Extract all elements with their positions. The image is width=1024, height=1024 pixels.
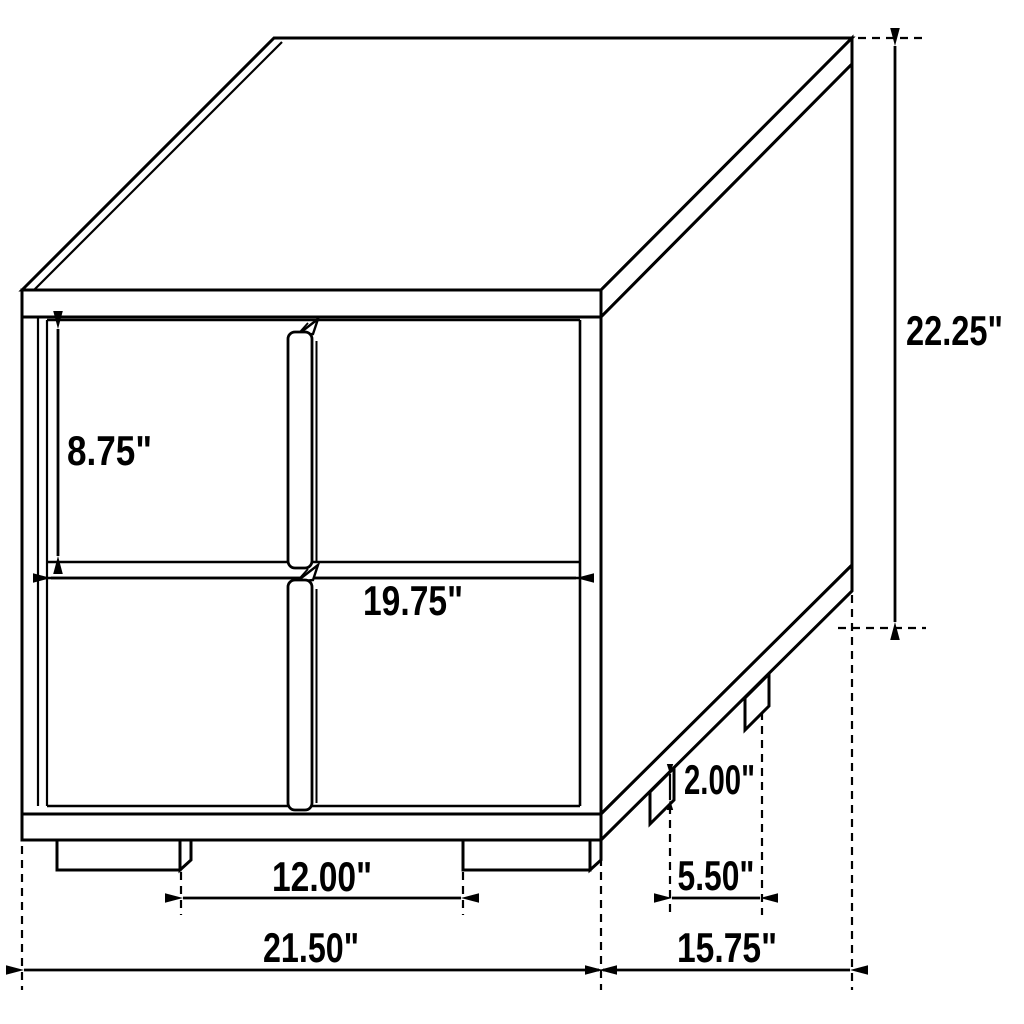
- lower-drawer-handle: [288, 580, 312, 810]
- dim-foot-height: 2.00": [670, 756, 755, 803]
- top-panel-front-edge: [22, 290, 601, 317]
- dimension-label-overall-width: 21.50": [263, 924, 359, 971]
- dimension-label-drawer-width: 19.75": [363, 577, 463, 624]
- dimension-drawing-page: 8.75" 19.75" 22.25" 2.00" 5.50" 12.00" 2…: [0, 0, 1024, 1024]
- dim-overall-height: 22.25": [838, 38, 1003, 628]
- dimension-label-front-feet-gap: 12.00": [272, 853, 372, 900]
- front-plinth: [22, 814, 601, 840]
- dimension-label-drawer-height: 8.75": [67, 427, 152, 474]
- dim-front-feet-gap: 12.00": [181, 853, 463, 915]
- dimension-label-foot-height: 2.00": [684, 756, 755, 803]
- nightstand-dimension-diagram: 8.75" 19.75" 22.25" 2.00" 5.50" 12.00" 2…: [0, 0, 1024, 1024]
- front-foot-left: [57, 838, 180, 870]
- front-foot-right: [463, 838, 590, 870]
- upper-drawer-handle: [288, 332, 312, 568]
- dimension-label-side-feet-gap: 5.50": [678, 852, 755, 899]
- dimension-label-overall-height: 22.25": [906, 307, 1003, 354]
- dimension-label-overall-depth: 15.75": [677, 924, 777, 971]
